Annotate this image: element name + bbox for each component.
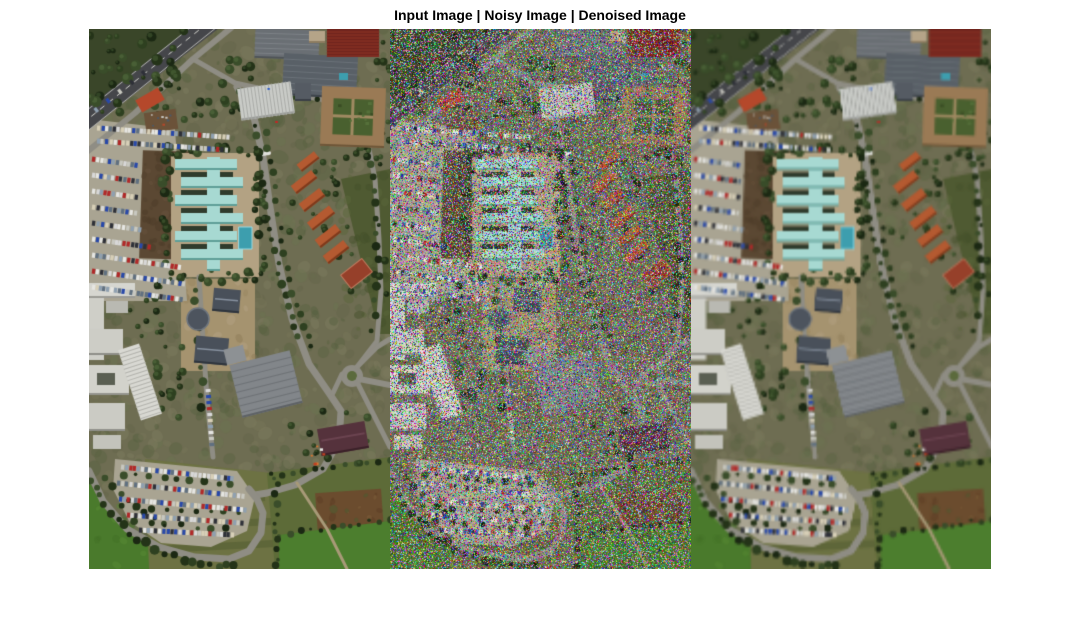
input-image — [89, 29, 390, 569]
denoised-image — [691, 29, 991, 569]
figure-title: Input Image | Noisy Image | Denoised Ima… — [89, 7, 991, 23]
figure-window: Input Image | Noisy Image | Denoised Ima… — [0, 0, 1083, 633]
noisy-image — [390, 29, 691, 569]
